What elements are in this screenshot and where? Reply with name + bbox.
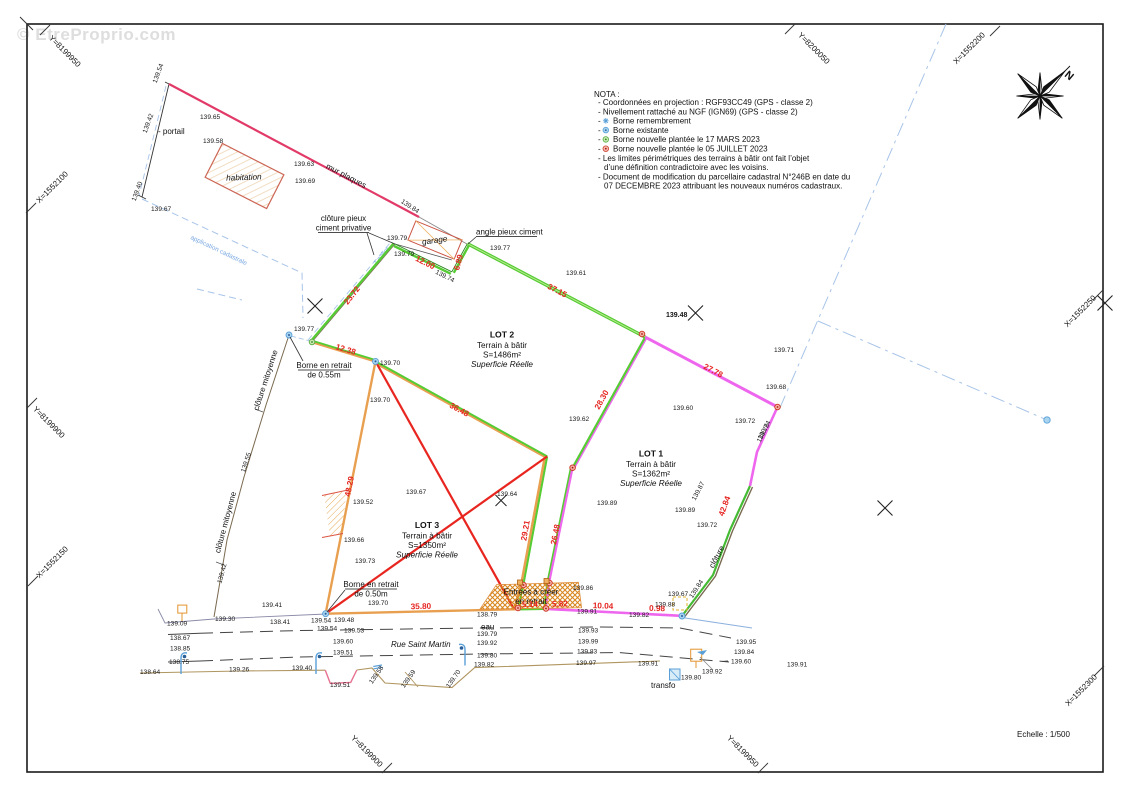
svg-text:- Les limites périmétriques de: - Les limites périmétriques des terrains… (598, 154, 810, 163)
svg-text:5.14: 5.14 (522, 600, 539, 609)
svg-text:07 DECEMBRE 2023 attribuant le: 07 DECEMBRE 2023 attribuant les nouveaux… (604, 182, 842, 191)
svg-text:139.67: 139.67 (151, 206, 172, 213)
svg-text:139.79: 139.79 (394, 251, 415, 258)
svg-text:139.95: 139.95 (736, 639, 757, 646)
svg-text:139.30: 139.30 (215, 616, 236, 623)
svg-text:139.54: 139.54 (311, 618, 332, 625)
svg-text:- portail: - portail (158, 127, 185, 136)
svg-text:139.62: 139.62 (569, 416, 590, 423)
svg-text:139.70: 139.70 (380, 360, 401, 367)
svg-text:transfo: transfo (651, 681, 676, 690)
svg-text:139.51: 139.51 (330, 682, 351, 689)
svg-text:139.77: 139.77 (490, 245, 511, 252)
svg-text:139.82: 139.82 (474, 662, 495, 669)
svg-text:139.48: 139.48 (334, 617, 355, 624)
svg-text:Superficie Réelle: Superficie Réelle (471, 360, 533, 369)
svg-text:139.58: 139.58 (203, 138, 224, 145)
svg-text:139.26: 139.26 (229, 667, 250, 674)
svg-text:139.64: 139.64 (497, 491, 518, 498)
svg-text:139.60: 139.60 (673, 405, 694, 412)
svg-text:139.86: 139.86 (573, 585, 594, 592)
svg-text:angle pieux ciment: angle pieux ciment (476, 228, 543, 237)
svg-text:clôture pieux: clôture pieux (321, 214, 366, 223)
svg-text:de 0.50m: de 0.50m (354, 590, 388, 599)
svg-text:Terrain à bâtir: Terrain à bâtir (626, 460, 676, 469)
svg-text:139.88: 139.88 (655, 602, 676, 609)
svg-text:139.60: 139.60 (731, 659, 752, 666)
svg-text:- Coordonnées en projection :: - Coordonnées en projection : RGF93CC49 … (598, 98, 813, 107)
svg-text:S=1362m²: S=1362m² (632, 470, 670, 479)
svg-text:LOT 1: LOT 1 (639, 449, 664, 459)
svg-text:139.60: 139.60 (333, 639, 354, 646)
svg-text:139.48: 139.48 (666, 312, 688, 319)
svg-text:Terrain à bâtir: Terrain à bâtir (477, 341, 527, 350)
svg-text:138.79: 138.79 (477, 612, 498, 619)
svg-text:35.80: 35.80 (411, 602, 432, 612)
svg-text:139.54: 139.54 (317, 626, 338, 633)
svg-text:139.66: 139.66 (344, 537, 365, 544)
svg-text:-: - (598, 126, 601, 135)
svg-text:138.75: 138.75 (169, 659, 190, 666)
svg-text:139.80: 139.80 (477, 653, 498, 660)
svg-text:Terrain à bâtir: Terrain à bâtir (402, 532, 452, 541)
svg-text:138.85: 138.85 (170, 646, 191, 653)
svg-text:Borne en retrait: Borne en retrait (296, 361, 352, 370)
svg-text:5.82: 5.82 (552, 599, 569, 608)
svg-text:138.64: 138.64 (140, 669, 161, 676)
svg-text:139.77: 139.77 (294, 326, 315, 333)
svg-text:139.99: 139.99 (578, 639, 599, 646)
svg-text:139.72: 139.72 (735, 418, 756, 425)
svg-text:- Document de modification du: - Document de modification du parcellair… (598, 172, 850, 181)
svg-text:139.91: 139.91 (638, 661, 659, 668)
svg-text:139.51: 139.51 (333, 650, 354, 657)
svg-text:-: - (598, 117, 601, 126)
svg-text:139.91: 139.91 (577, 609, 598, 616)
svg-text:139.97: 139.97 (576, 660, 597, 667)
svg-text:139.70: 139.70 (368, 600, 389, 607)
svg-text:habitation: habitation (226, 172, 262, 182)
svg-text:d’une définition contradictoir: d’une définition contradictoire avec les… (604, 163, 769, 172)
svg-text:139.61: 139.61 (566, 270, 587, 277)
svg-text:Superficie Réelle: Superficie Réelle (620, 479, 682, 488)
svg-text:138.67: 138.67 (170, 635, 191, 642)
svg-text:139.82: 139.82 (629, 612, 650, 619)
svg-text:S=1350m²: S=1350m² (408, 541, 446, 550)
svg-text:139.73: 139.73 (355, 558, 376, 565)
svg-text:139.67: 139.67 (668, 591, 689, 598)
svg-text:Borne existante: Borne existante (613, 126, 669, 135)
svg-text:139.91: 139.91 (787, 662, 808, 669)
svg-text:139.89: 139.89 (597, 500, 618, 507)
svg-text:Superficie Réelle: Superficie Réelle (396, 551, 458, 560)
svg-text:139.71: 139.71 (774, 347, 795, 354)
svg-text:Borne nouvelle plantée le 17 M: Borne nouvelle plantée le 17 MARS 2023 (613, 135, 760, 144)
svg-text:139.53: 139.53 (344, 628, 365, 635)
svg-text:- Nivellement rattaché au NGF: - Nivellement rattaché au NGF (IGN69) (G… (598, 107, 798, 116)
svg-text:139.09: 139.09 (167, 621, 188, 628)
svg-text:LOT 2: LOT 2 (490, 330, 515, 340)
svg-text:139.79: 139.79 (387, 235, 408, 242)
svg-text:139.52: 139.52 (353, 499, 374, 506)
svg-text:139.67: 139.67 (406, 489, 427, 496)
svg-text:139.63: 139.63 (294, 161, 315, 168)
svg-text:Borne remembrement: Borne remembrement (613, 117, 692, 126)
svg-text:Echelle : 1/500: Echelle : 1/500 (1017, 730, 1070, 739)
svg-text:139.80: 139.80 (681, 675, 702, 682)
svg-text:139.84: 139.84 (734, 649, 755, 656)
svg-text:ciment privative: ciment privative (316, 224, 372, 233)
svg-text:Rue Saint Martin: Rue Saint Martin (391, 640, 451, 649)
svg-text:139.93: 139.93 (578, 628, 599, 635)
svg-text:139.72: 139.72 (697, 522, 718, 529)
svg-text:138.41: 138.41 (270, 619, 291, 626)
svg-text:139.40: 139.40 (292, 665, 313, 672)
svg-text:139.65: 139.65 (200, 114, 221, 121)
svg-text:139.92: 139.92 (702, 669, 723, 676)
svg-text:139.70: 139.70 (370, 397, 391, 404)
svg-text:139.41: 139.41 (262, 602, 283, 609)
svg-text:Borne nouvelle plantée le 05 J: Borne nouvelle plantée le 05 JUILLET 202… (613, 145, 768, 154)
svg-text:Borne en retrait: Borne en retrait (343, 580, 399, 589)
svg-text:139.89: 139.89 (675, 507, 696, 514)
svg-text:139.79: 139.79 (477, 631, 498, 638)
svg-text:139.92: 139.92 (477, 640, 498, 647)
svg-text:S=1486m²: S=1486m² (483, 351, 521, 360)
svg-text:139.83: 139.83 (577, 649, 598, 656)
svg-text:139.69: 139.69 (295, 178, 316, 185)
svg-text:139.68: 139.68 (766, 384, 787, 391)
svg-text:-: - (598, 135, 601, 144)
svg-text:de 0.55m: de 0.55m (307, 371, 341, 380)
svg-text:LOT 3: LOT 3 (415, 520, 440, 530)
svg-text:Entrées à créer: Entrées à créer (504, 588, 559, 597)
svg-text:-: - (598, 145, 601, 154)
